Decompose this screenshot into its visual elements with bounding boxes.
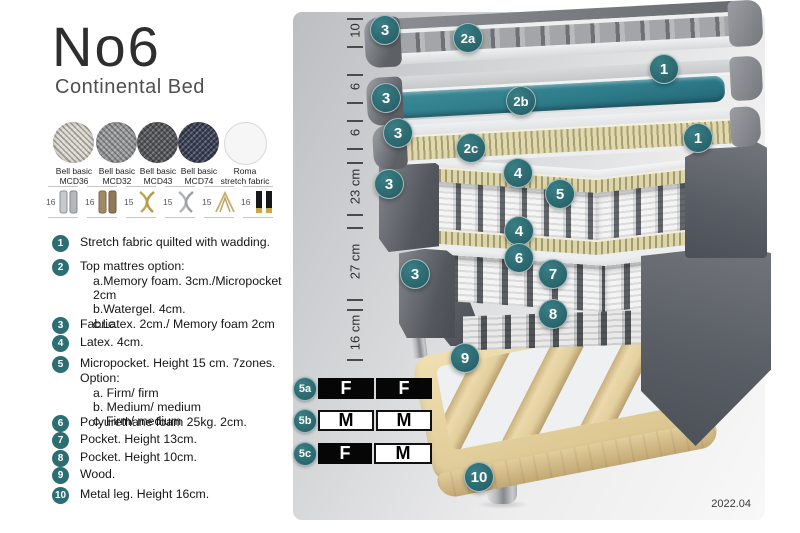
measure-line bbox=[48, 217, 78, 218]
feature-item-6: 6 Polyurethane foam 25kg. 2cm. bbox=[52, 415, 294, 432]
measure-line bbox=[87, 217, 117, 218]
leg-height-label: 16 bbox=[46, 197, 55, 207]
callout-2c: 2c bbox=[456, 133, 486, 163]
fabric-name: Bell basic bbox=[56, 166, 92, 176]
fabric-swatch-label: Romastretch fabric bbox=[216, 167, 274, 186]
callout-3: 3 bbox=[400, 259, 430, 289]
callout-9: 9 bbox=[450, 343, 480, 373]
callout-2a: 2a bbox=[453, 23, 483, 53]
feature-text: Wood. bbox=[80, 467, 115, 484]
leg-icon-cylinder-silver bbox=[57, 190, 81, 214]
feature-item-4: 4 Latex. 4cm. bbox=[52, 335, 294, 352]
measure-line bbox=[126, 186, 156, 187]
fabric-swatch-mcd74 bbox=[178, 122, 219, 163]
measure-line bbox=[204, 186, 234, 187]
feature-number-badge: 3 bbox=[52, 317, 69, 334]
callout-1: 1 bbox=[683, 123, 713, 153]
side-fabric-right bbox=[685, 138, 767, 258]
measure-line bbox=[243, 186, 273, 187]
callout-2b: 2b bbox=[506, 86, 536, 116]
firmness-cell: M bbox=[318, 410, 374, 431]
layer-bands bbox=[394, 1, 738, 65]
feature-number-badge: 5 bbox=[52, 356, 69, 373]
feature-number-badge: 8 bbox=[52, 450, 69, 467]
firmness-option-badge-5a: 5a bbox=[293, 377, 317, 401]
feature-sub-line: a. Firm/ firm bbox=[93, 386, 294, 400]
feature-text: Pocket. Height 10cm. bbox=[80, 450, 197, 467]
feature-item-7: 7 Pocket. Height 13cm. bbox=[52, 432, 294, 449]
callout-3: 3 bbox=[371, 83, 401, 113]
fabric-code: MCD43 bbox=[144, 176, 173, 186]
fabric-code: MCD36 bbox=[60, 176, 89, 186]
callout-8: 8 bbox=[538, 299, 568, 329]
ruler-tick bbox=[347, 299, 363, 301]
measure-line bbox=[165, 217, 195, 218]
ruler-tick bbox=[347, 227, 363, 229]
dimension-label: 23 cm bbox=[348, 159, 363, 215]
feature-item-3: 3 Fabric. bbox=[52, 317, 294, 334]
product-title: No6 bbox=[52, 14, 161, 79]
firmness-row-5b: M M bbox=[318, 410, 432, 431]
product-subtitle: Continental Bed bbox=[55, 76, 205, 99]
feature-sub-line: b. Medium/ medium bbox=[93, 400, 294, 414]
dimension-label: 6 bbox=[348, 105, 363, 161]
measure-line bbox=[243, 217, 273, 218]
fabric-swatch-mcd32 bbox=[96, 122, 137, 163]
leg-height-label: 15 bbox=[202, 197, 211, 207]
leg-height-label: 15 bbox=[163, 197, 172, 207]
feature-item-8: 8 Pocket. Height 10cm. bbox=[52, 450, 294, 467]
callout-5: 5 bbox=[545, 179, 575, 209]
feature-item-1: 1 Stretch fabric quilted with wadding. bbox=[52, 235, 294, 252]
feature-number-badge: 1 bbox=[52, 235, 69, 252]
firmness-option-badge-5b: 5b bbox=[293, 409, 317, 433]
feature-number-badge: 10 bbox=[52, 487, 69, 504]
feature-number-badge: 7 bbox=[52, 432, 69, 449]
firmness-row-5c: F M bbox=[318, 443, 432, 464]
leg-option: 15 bbox=[123, 186, 161, 219]
fabric-name: Bell basic bbox=[181, 166, 217, 176]
feature-text: Polyurethane foam 25kg. 2cm. bbox=[80, 415, 247, 432]
leg-icon-cylinder-bronze bbox=[96, 190, 120, 214]
leg-option: 16 bbox=[240, 186, 278, 219]
feature-main-line: Top mattres option: bbox=[80, 259, 294, 274]
callout-10: 10 bbox=[464, 462, 494, 492]
leg-height-label: 15 bbox=[124, 197, 133, 207]
leg-icon-twist-silver bbox=[174, 190, 198, 214]
firmness-cell: M bbox=[374, 443, 432, 464]
leg-height-label: 16 bbox=[85, 197, 94, 207]
firmness-cell: F bbox=[318, 443, 372, 464]
feature-text: Latex. 4cm. bbox=[80, 335, 144, 352]
measure-line bbox=[204, 217, 234, 218]
leg-icon-square-black-gold bbox=[252, 190, 276, 214]
firmness-cell: F bbox=[318, 378, 374, 399]
callout-3: 3 bbox=[383, 118, 413, 148]
feature-number-badge: 6 bbox=[52, 415, 69, 432]
dimension-label: 16 cm bbox=[348, 305, 363, 361]
fabric-swatch-roma bbox=[224, 122, 267, 165]
top-mattress-option-a bbox=[368, 0, 762, 70]
feature-number-badge: 4 bbox=[52, 335, 69, 352]
feature-text: Pocket. Height 13cm. bbox=[80, 432, 197, 449]
feature-number-badge: 2 bbox=[52, 259, 69, 276]
measure-line bbox=[126, 217, 156, 218]
fabric-code: stretch fabric bbox=[221, 176, 270, 186]
fabric-code: MCD74 bbox=[185, 176, 214, 186]
feature-main-line: Micropocket. Height 15 cm. 7zones. Optio… bbox=[80, 356, 294, 386]
fabric-end-cap bbox=[727, 0, 763, 47]
feature-text: Fabric. bbox=[80, 317, 118, 334]
callout-3: 3 bbox=[370, 15, 400, 45]
feature-number-badge: 9 bbox=[52, 467, 69, 484]
callout-4: 4 bbox=[503, 158, 533, 188]
lower-mattress-27cm bbox=[399, 252, 765, 348]
feature-text: Metal leg. Height 16cm. bbox=[80, 487, 209, 504]
fabric-name: Roma bbox=[234, 166, 257, 176]
firmness-row-5a: F F bbox=[318, 378, 432, 399]
leg-option: 15 bbox=[201, 186, 239, 219]
leg-option: 15 bbox=[162, 186, 200, 219]
fabric-end-cap bbox=[729, 56, 763, 102]
fabric-swatch-mcd36 bbox=[53, 122, 94, 163]
bed-diagram-panel: 10 6 6 23 cm 27 cm 16 cm bbox=[293, 12, 765, 520]
feature-item-9: 9 Wood. bbox=[52, 467, 294, 484]
dimension-label: 10 bbox=[348, 3, 363, 59]
leg-option: 16 bbox=[84, 186, 122, 219]
leg-height-label: 16 bbox=[241, 197, 250, 207]
firmness-cell: F bbox=[376, 378, 432, 399]
leg-icon-twist-gold bbox=[135, 190, 159, 214]
main-mattress-23cm bbox=[379, 164, 765, 252]
firmness-option-badge-5c: 5c bbox=[293, 442, 317, 466]
fabric-end-cap bbox=[729, 106, 761, 148]
dimension-label: 27 cm bbox=[348, 234, 363, 290]
callout-1: 1 bbox=[649, 54, 679, 84]
callout-4: 4 bbox=[504, 216, 534, 246]
feature-text: Stretch fabric quilted with wadding. bbox=[80, 235, 270, 252]
callout-6: 6 bbox=[504, 243, 534, 273]
leg-option: 16 bbox=[45, 186, 83, 219]
feature-item-10: 10 Metal leg. Height 16cm. bbox=[52, 487, 294, 504]
measure-line bbox=[165, 186, 195, 187]
fabric-code: MCD32 bbox=[103, 176, 132, 186]
fabric-swatch-mcd43 bbox=[137, 122, 178, 163]
callout-3: 3 bbox=[374, 169, 404, 199]
feature-sub-line: a.Memory foam. 3cm./Micropocket 2cm bbox=[93, 274, 294, 302]
callout-7: 7 bbox=[538, 259, 568, 289]
firmness-cell: M bbox=[376, 410, 432, 431]
measure-line bbox=[87, 186, 117, 187]
feature-sub-line: b.Watergel. 4cm. bbox=[93, 302, 294, 316]
leg-icon-hairpin bbox=[213, 190, 237, 214]
version-label: 2022.04 bbox=[711, 498, 751, 510]
measure-line bbox=[48, 186, 78, 187]
